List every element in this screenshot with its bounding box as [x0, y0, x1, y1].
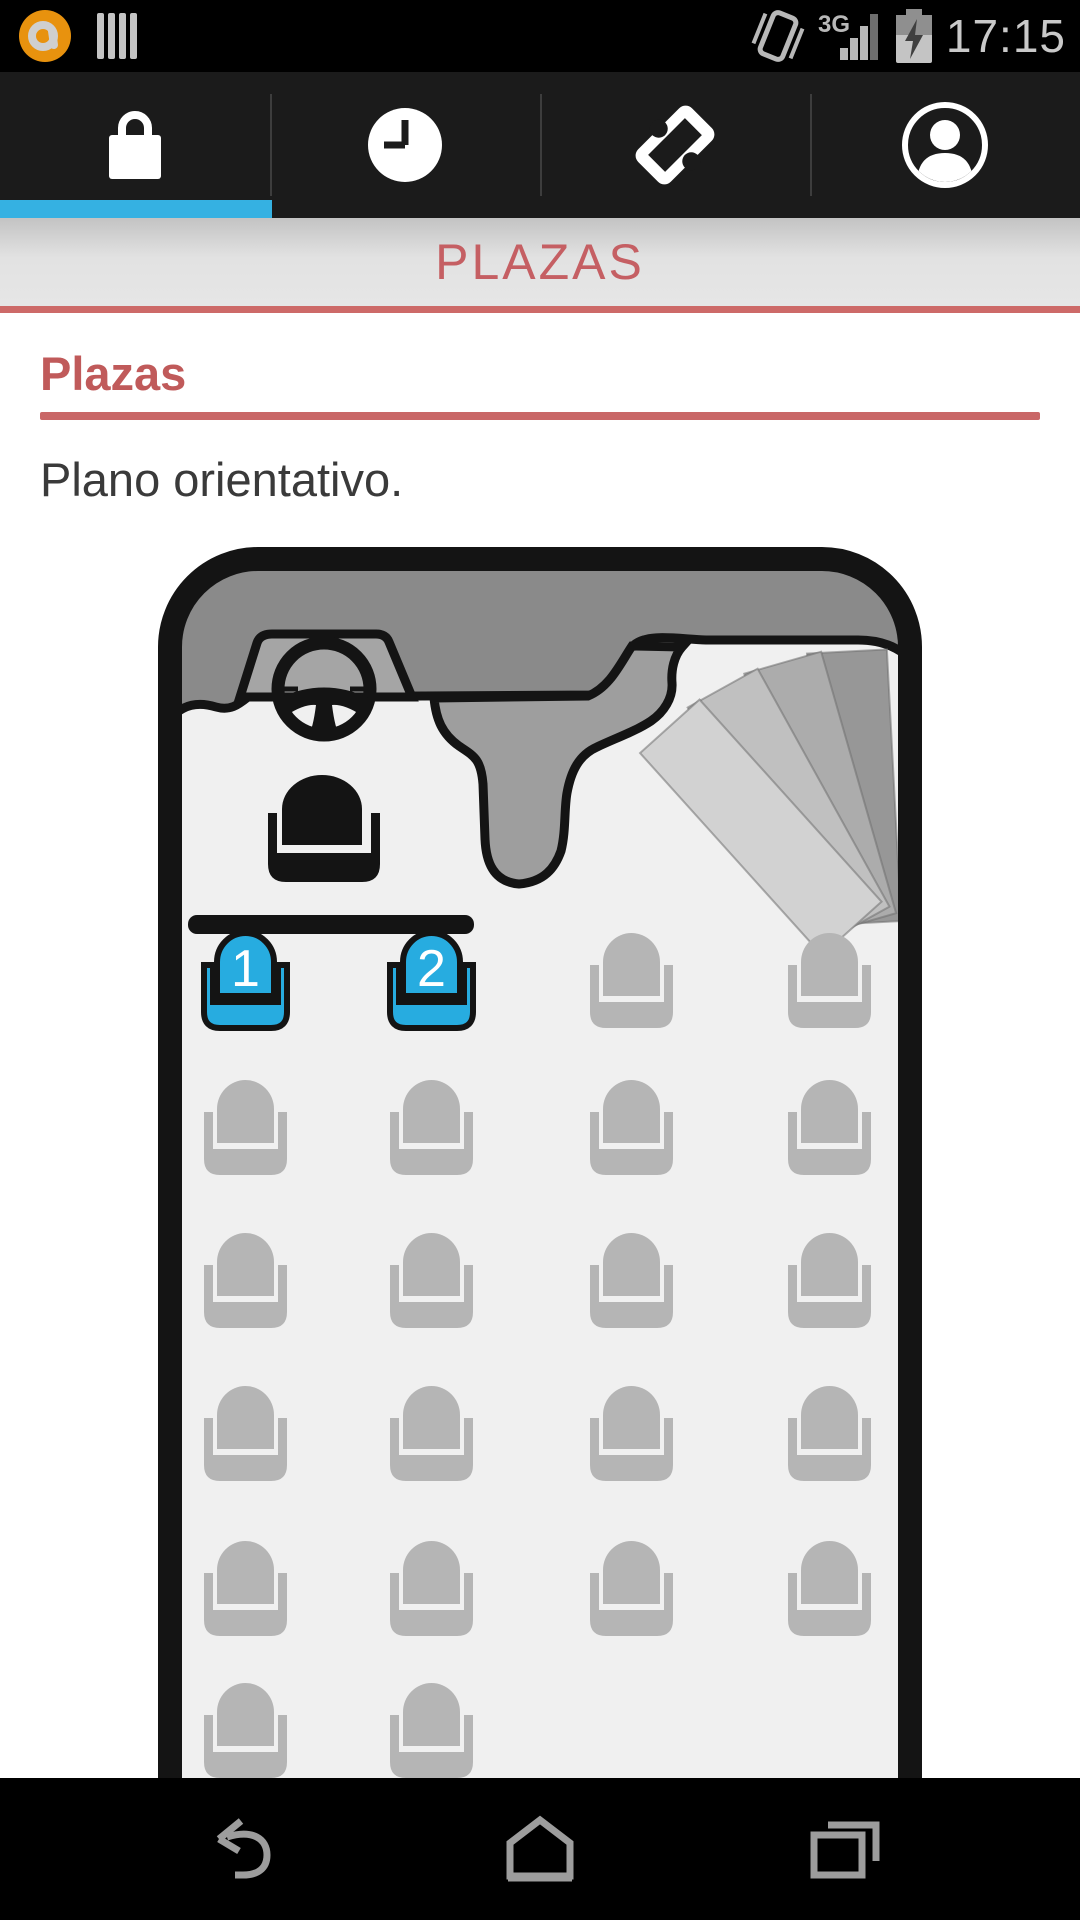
bars-notification-icon — [92, 10, 142, 62]
seat-number-label: 2 — [417, 940, 446, 998]
back-icon — [205, 1813, 285, 1885]
heading-rule — [40, 412, 1040, 420]
app-logo-icon — [16, 7, 74, 65]
tab-schedule[interactable] — [270, 72, 540, 218]
status-bar: 3G 17:15 — [0, 0, 1080, 72]
page-title: PLAZAS — [435, 233, 645, 291]
recents-button[interactable] — [745, 1778, 945, 1920]
seat-number-label: 1 — [231, 940, 260, 998]
vibrate-icon — [750, 6, 806, 66]
section-heading: Plazas — [40, 346, 186, 401]
status-bar-right: 3G 17:15 — [750, 6, 1080, 66]
tab-profile[interactable] — [810, 72, 1080, 218]
tab-tickets[interactable] — [540, 72, 810, 218]
status-bar-left — [0, 7, 750, 65]
clock-icon — [362, 102, 448, 188]
network-type-label: 3G — [818, 11, 850, 38]
navigation-bar — [0, 1778, 1080, 1920]
home-button[interactable] — [440, 1778, 640, 1920]
home-icon — [498, 1813, 582, 1885]
bus-seat-map: 12 — [158, 547, 922, 1778]
back-button[interactable] — [145, 1778, 345, 1920]
person-icon — [899, 99, 991, 191]
recents-icon — [806, 1813, 884, 1885]
signal-3g-icon: 3G — [816, 8, 882, 64]
header-band: PLAZAS — [0, 218, 1080, 313]
screen: { "status_bar": { "time": "17:15", "netw… — [0, 0, 1080, 1920]
tab-shop[interactable] — [0, 72, 270, 218]
active-tab-indicator — [0, 200, 272, 218]
battery-charging-icon — [892, 7, 936, 65]
shopping-bag-icon — [92, 102, 178, 188]
tab-bar — [0, 72, 1080, 218]
section-subtitle: Plano orientativo. — [40, 452, 403, 507]
clock-time: 17:15 — [946, 9, 1066, 63]
ticket-icon — [627, 97, 723, 193]
